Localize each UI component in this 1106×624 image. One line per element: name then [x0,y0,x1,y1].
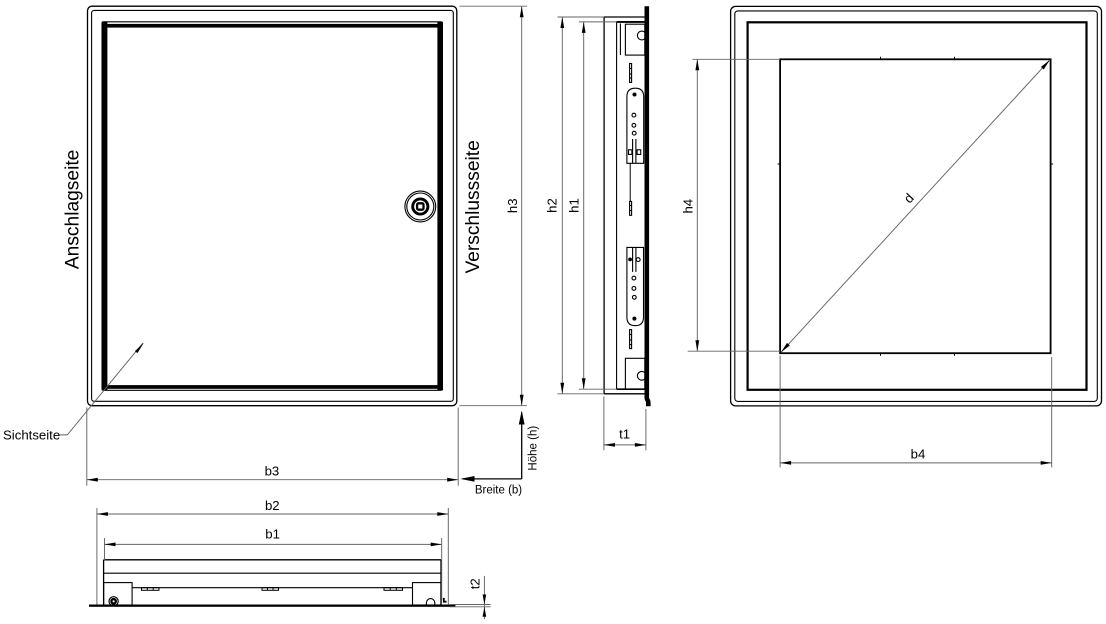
svg-text:Höhe (h): Höhe (h) [528,426,540,471]
svg-text:b3: b3 [265,463,280,478]
svg-text:h4: h4 [680,199,695,214]
svg-text:b1: b1 [265,527,280,542]
svg-text:Breite (b): Breite (b) [475,485,522,497]
svg-text:t1: t1 [619,427,630,442]
svg-text:h2: h2 [545,198,560,213]
svg-text:t2: t2 [468,578,483,589]
svg-text:Verschlussseite: Verschlussseite [463,140,484,273]
svg-text:h3: h3 [505,198,520,213]
svg-text:b2: b2 [265,498,280,513]
svg-text:h1: h1 [567,198,582,213]
svg-text:Sichtseite: Sichtseite [3,428,60,443]
svg-text:b4: b4 [911,446,926,461]
svg-text:Anschlagseite: Anschlagseite [63,150,84,269]
